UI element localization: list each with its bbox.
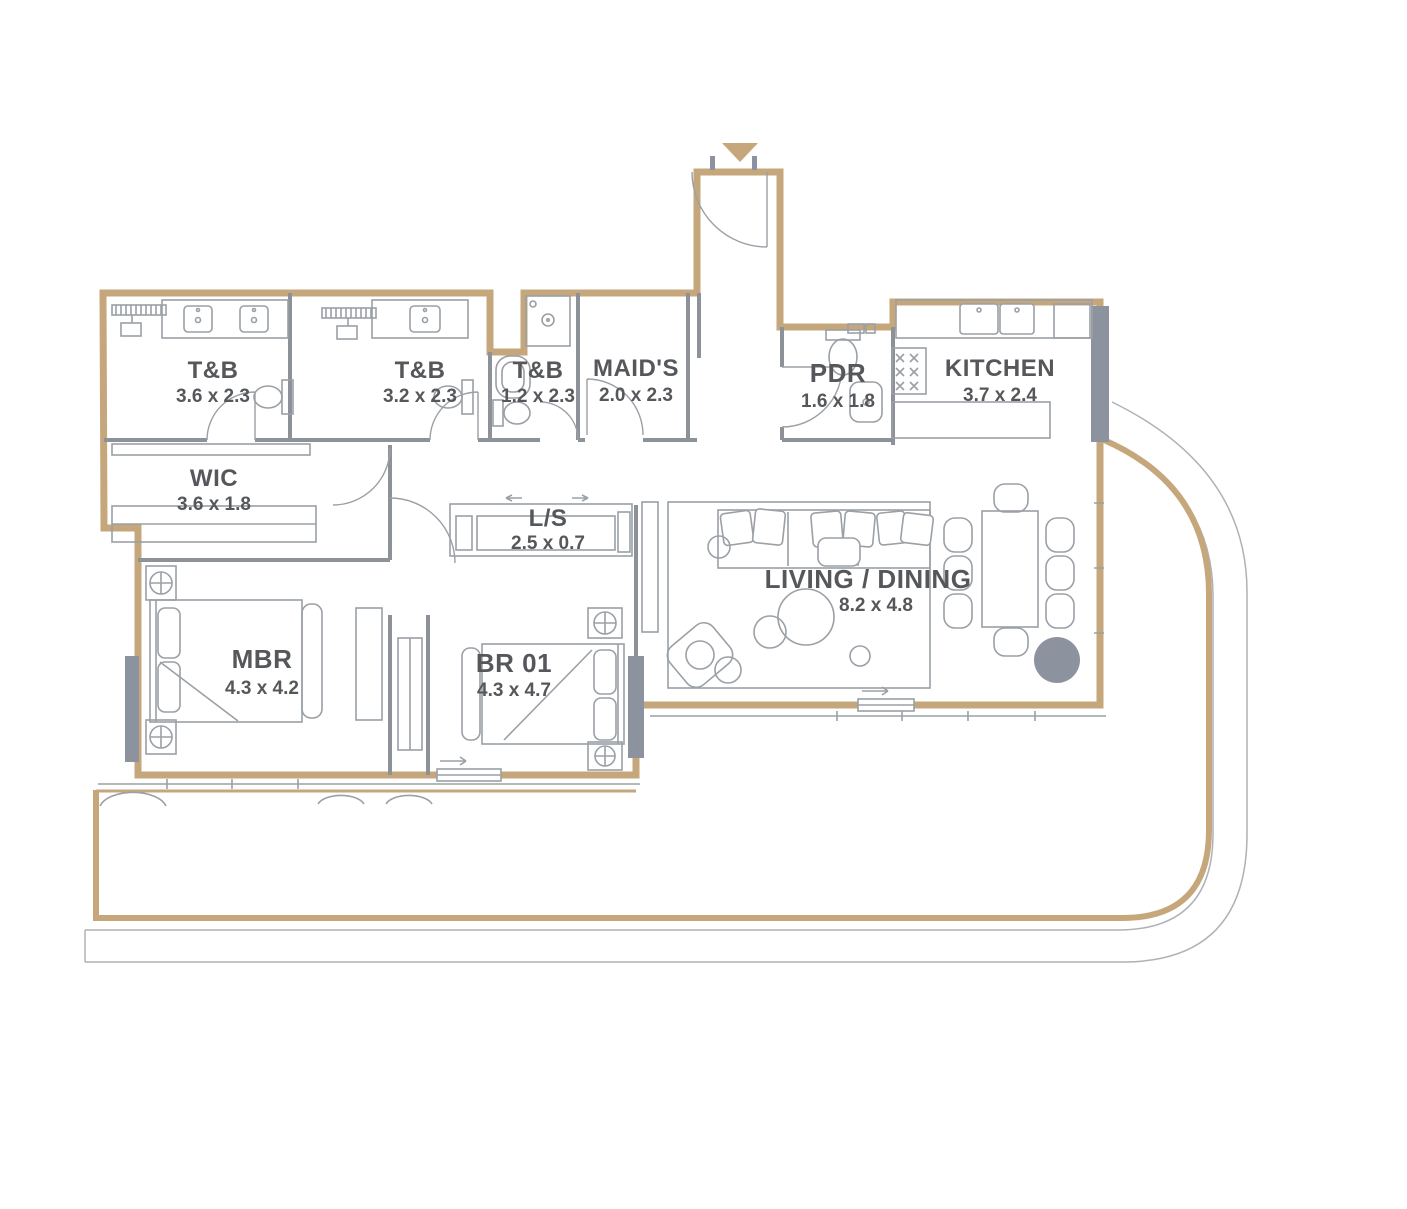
room-label-maids: MAID'S bbox=[593, 355, 679, 382]
room-dims-wic: 3.6 x 1.8 bbox=[177, 494, 251, 515]
room-label-mbr: MBR bbox=[232, 644, 293, 674]
floor-plan-page: T&B 3.6 x 2.3 T&B 3.2 x 2.3 T&B 1.2 x 2.… bbox=[0, 0, 1407, 1209]
room-dims-mbr: 4.3 x 4.2 bbox=[225, 678, 299, 699]
room-label-tb2: T&B bbox=[395, 357, 446, 384]
room-dims-ls: 2.5 x 0.7 bbox=[511, 533, 585, 554]
entry-door-swing bbox=[692, 172, 767, 247]
room-dims-living: 8.2 x 4.8 bbox=[839, 595, 913, 616]
room-dims-br01: 4.3 x 4.7 bbox=[477, 680, 551, 701]
room-dims-tb3: 1.2 x 2.3 bbox=[501, 386, 575, 407]
window-panel bbox=[125, 656, 139, 762]
column bbox=[628, 656, 644, 758]
floor-plan-canvas: T&B 3.6 x 2.3 T&B 3.2 x 2.3 T&B 1.2 x 2.… bbox=[0, 0, 1407, 1209]
room-label-kitchen: KITCHEN bbox=[945, 355, 1055, 382]
room-label-br01: BR 01 bbox=[476, 648, 552, 678]
wic-closet bbox=[112, 444, 316, 542]
room-label-pdr: PDR bbox=[810, 358, 866, 388]
room-label-ls: L/S bbox=[529, 505, 568, 532]
room-dims-tb2: 3.2 x 2.3 bbox=[383, 386, 457, 407]
door-post bbox=[752, 156, 757, 170]
column-circle bbox=[1034, 637, 1080, 683]
room-dims-tb1: 3.6 x 2.3 bbox=[176, 386, 250, 407]
room-dims-pdr: 1.6 x 1.8 bbox=[801, 391, 875, 412]
room-label-tb3: T&B bbox=[513, 357, 564, 384]
slide-direction-arrow bbox=[440, 757, 466, 765]
door-post bbox=[710, 156, 715, 170]
room-label-living: LIVING / DINING bbox=[765, 564, 972, 594]
room-dims-kitchen: 3.7 x 2.4 bbox=[963, 385, 1037, 406]
room-label-tb1: T&B bbox=[188, 357, 239, 384]
column bbox=[1091, 306, 1109, 442]
entry bbox=[692, 143, 767, 247]
room-label-wic: WIC bbox=[190, 465, 238, 492]
room-dims-maids: 2.0 x 2.3 bbox=[599, 385, 673, 406]
